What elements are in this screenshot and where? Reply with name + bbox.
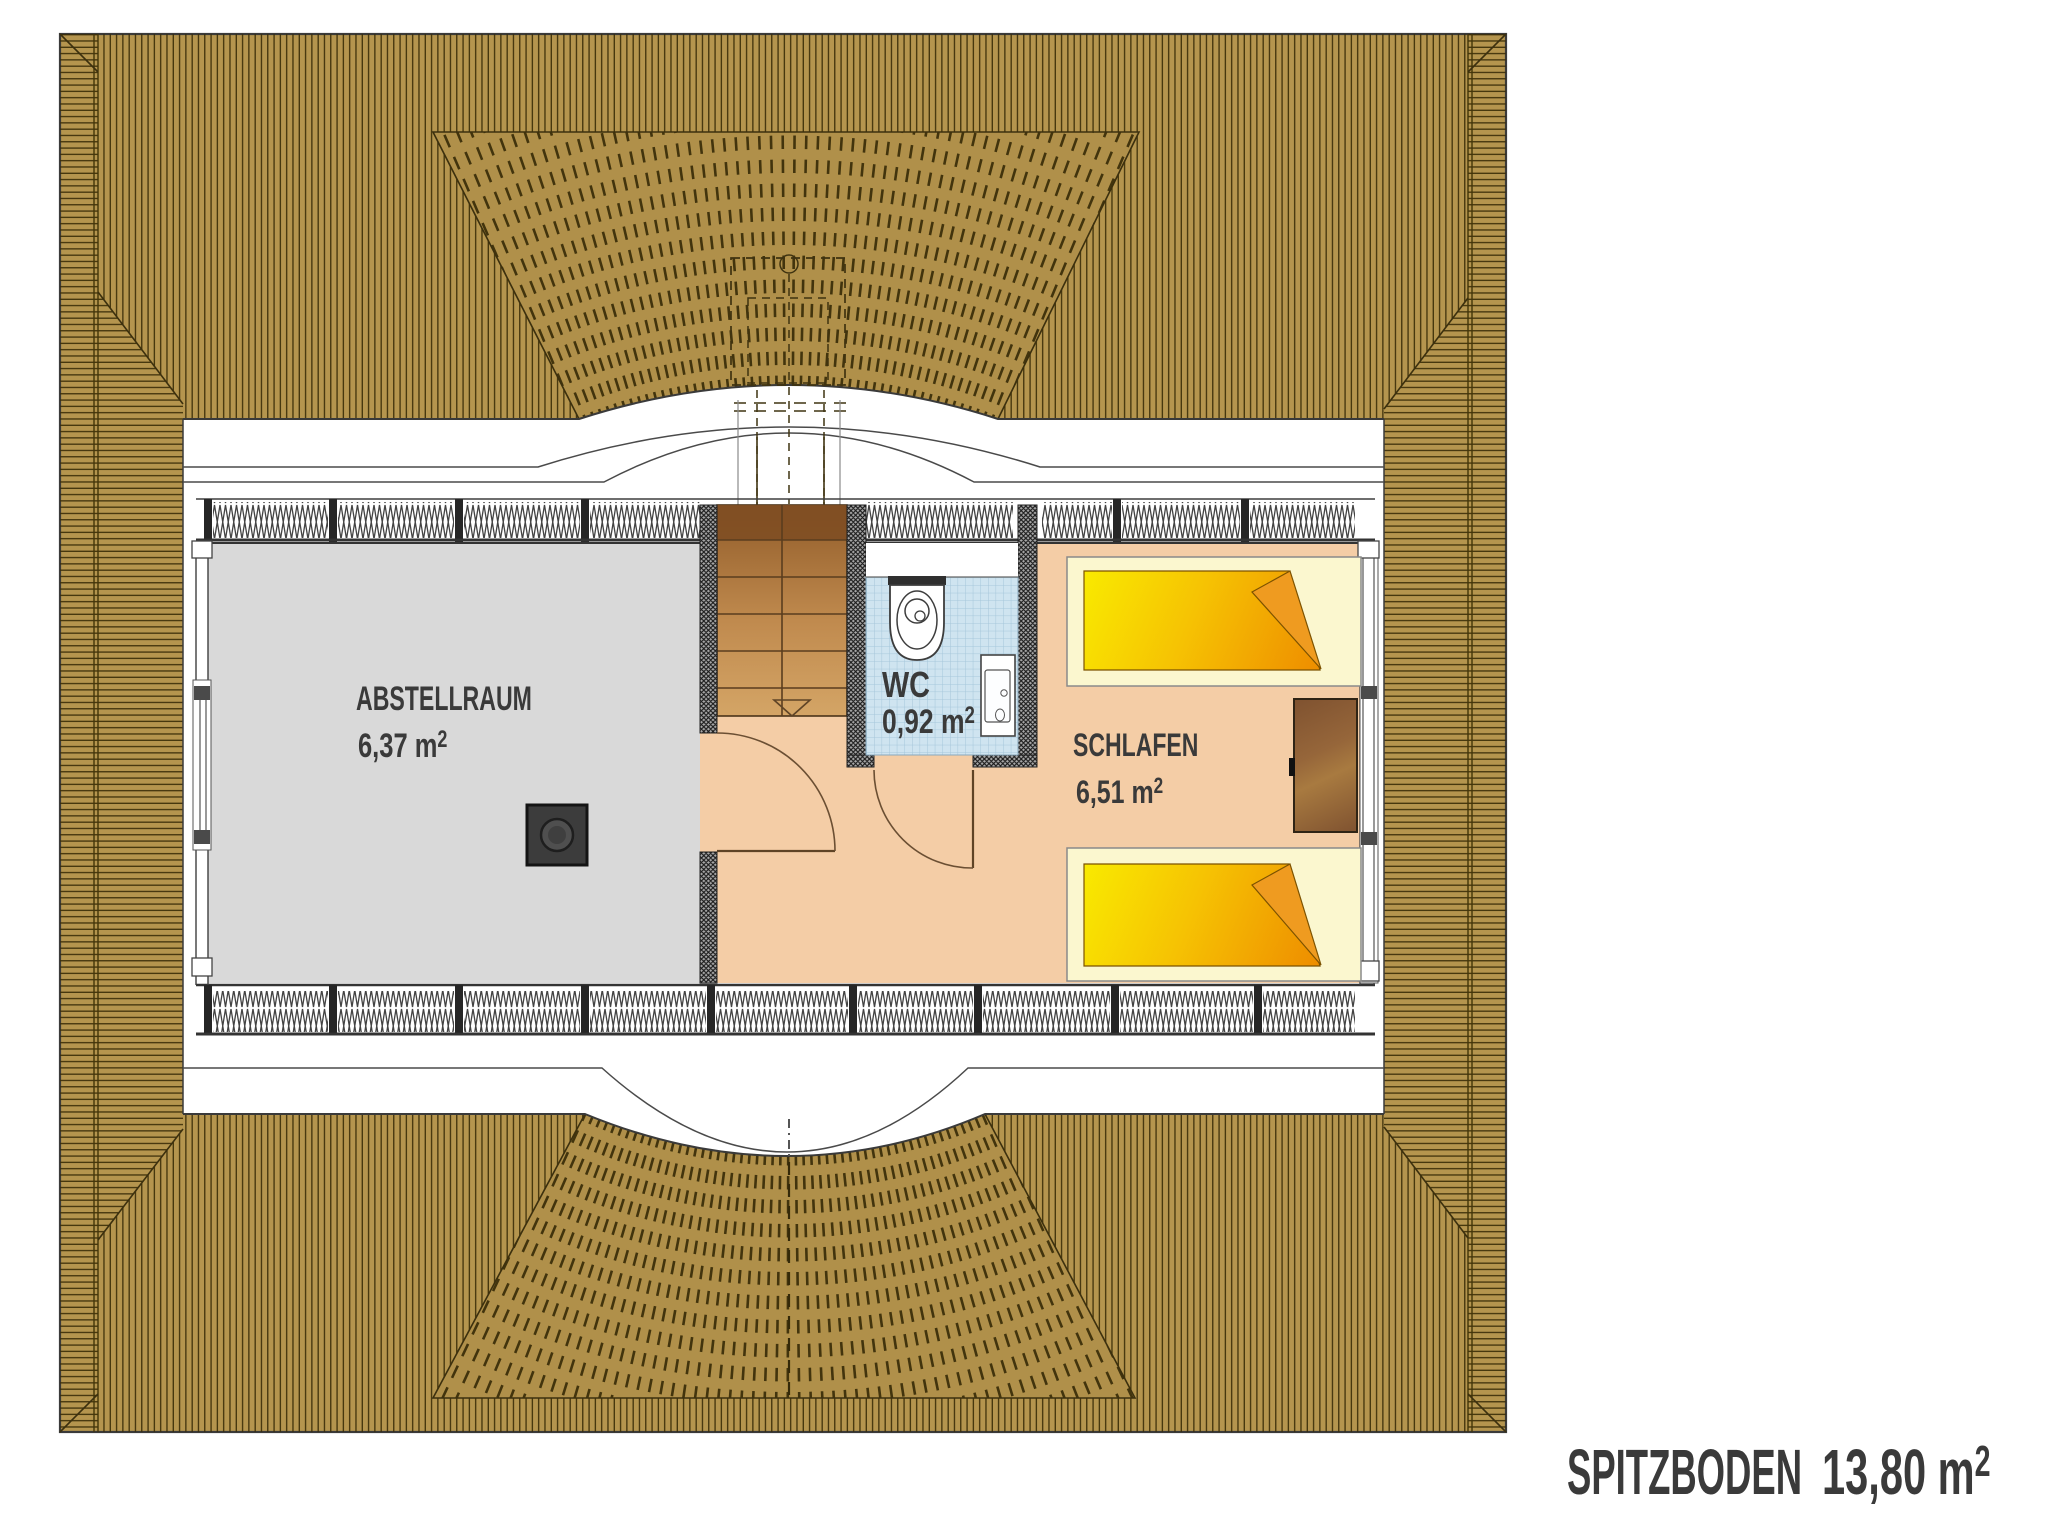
svg-text:SPITZBODEN: SPITZBODEN (1567, 1437, 1802, 1508)
svg-text:6,37 m2: 6,37 m2 (358, 727, 447, 765)
svg-text:6,51 m2: 6,51 m2 (1076, 774, 1163, 811)
svg-text:WC: WC (882, 664, 930, 705)
svg-text:13,80 m2: 13,80 m2 (1822, 1436, 1991, 1509)
svg-text:SCHLAFEN: SCHLAFEN (1073, 727, 1198, 763)
svg-text:0,92 m2: 0,92 m2 (882, 702, 975, 741)
svg-text:ABSTELLRAUM: ABSTELLRAUM (356, 681, 532, 718)
